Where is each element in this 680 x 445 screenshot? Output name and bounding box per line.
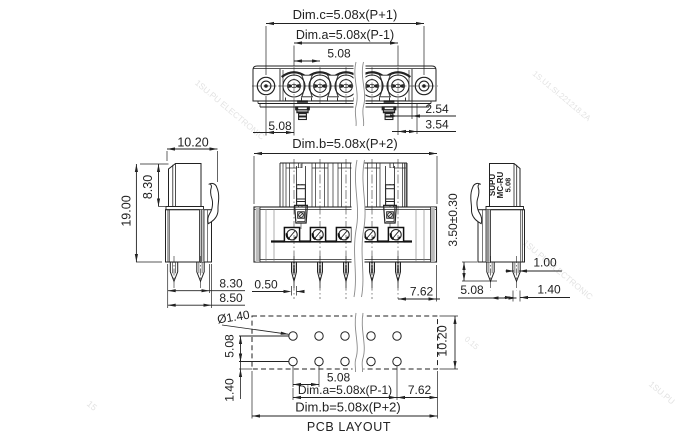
svg-text:5.08: 5.08 bbox=[504, 178, 513, 193]
svg-text:10.20: 10.20 bbox=[177, 136, 208, 150]
svg-text:1.40: 1.40 bbox=[223, 378, 237, 402]
svg-text:7.62: 7.62 bbox=[410, 285, 434, 299]
svg-text:Dim.b=5.08x(P+2): Dim.b=5.08x(P+2) bbox=[292, 136, 398, 151]
svg-text:Dim.a=5.08x(P-1): Dim.a=5.08x(P-1) bbox=[296, 28, 394, 42]
svg-text:5.08: 5.08 bbox=[460, 283, 484, 297]
svg-text:0.50: 0.50 bbox=[254, 278, 278, 292]
svg-text:3.50±0.30: 3.50±0.30 bbox=[446, 193, 460, 247]
svg-text:Dim.c=5.08x(P+1): Dim.c=5.08x(P+1) bbox=[293, 7, 398, 22]
svg-text:5.08: 5.08 bbox=[223, 334, 237, 358]
svg-text:5.08: 5.08 bbox=[268, 119, 292, 133]
svg-text:1.40: 1.40 bbox=[537, 283, 561, 297]
svg-text:Dim.b=5.08x(P+2): Dim.b=5.08x(P+2) bbox=[295, 400, 401, 415]
svg-text:8.50: 8.50 bbox=[219, 291, 243, 305]
svg-text:7.62: 7.62 bbox=[408, 383, 432, 397]
svg-text:8.30: 8.30 bbox=[219, 277, 243, 291]
svg-text:10.20: 10.20 bbox=[436, 325, 450, 356]
svg-text:3.54: 3.54 bbox=[425, 118, 449, 132]
svg-text:PCB LAYOUT: PCB LAYOUT bbox=[307, 420, 391, 434]
svg-text:1.00: 1.00 bbox=[533, 256, 557, 270]
svg-text:2.54: 2.54 bbox=[425, 102, 449, 116]
svg-text:5.08: 5.08 bbox=[327, 47, 351, 61]
svg-text:Dim.a=5.08x(P-1): Dim.a=5.08x(P-1) bbox=[298, 383, 392, 397]
svg-text:8.30: 8.30 bbox=[141, 175, 155, 199]
svg-text:19.00: 19.00 bbox=[120, 195, 134, 226]
